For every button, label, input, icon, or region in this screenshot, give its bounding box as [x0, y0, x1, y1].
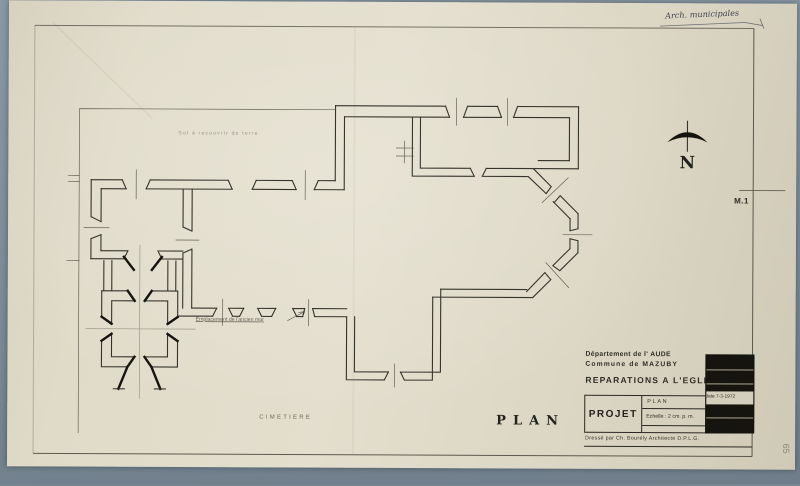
north-letter: N — [679, 153, 695, 173]
visa-stamp-box: date 7-3-1972 — [705, 354, 754, 433]
drawing-name: PLAN — [647, 398, 668, 404]
sacristy-walls — [84, 180, 200, 309]
project-table: PROJET PLAN Echelle : 2 cm. p. m. — [584, 395, 707, 434]
sheet-tab-label: M.1 — [734, 196, 749, 205]
churchyard-wall — [66, 109, 335, 434]
project-cell: PROJET — [585, 396, 642, 432]
paper-creases — [51, 22, 355, 454]
department-line: Département de l' AUDE — [585, 350, 670, 358]
date-label: date 7-3-1972 — [705, 393, 735, 399]
north-arrow: N — [667, 121, 707, 173]
chapel-interior-walls — [396, 117, 533, 177]
cemetery-label: CIMETIERE — [259, 413, 312, 420]
scale-label: Echelle : 2 cm. p. m. — [646, 413, 694, 419]
nave-walls — [91, 170, 348, 326]
yard-label: Sol à recouvrir de terre — [178, 130, 258, 136]
south-chapel-walls — [346, 289, 440, 387]
project-title: REPARATIONS A L'EGLISE — [585, 375, 721, 386]
credit-line: Dressé par Ch. Bourély Architecte D.P.L.… — [585, 435, 699, 441]
bell-tower — [85, 245, 196, 399]
commune-line: Commune de MAZUBY — [585, 360, 678, 368]
wall-note-label: Emplacement de l'ancien mur — [196, 316, 264, 322]
photo-mount-background: N Arch. municipales M.1 Sol à recouvrir … — [0, 0, 800, 484]
apse-walls — [433, 106, 593, 298]
plan-caption: PLAN — [496, 413, 565, 428]
drawing-sheet: N Arch. municipales M.1 Sol à recouvrir … — [7, 0, 797, 469]
pencil-mark: 65 — [781, 444, 791, 454]
frame-border — [33, 25, 786, 456]
